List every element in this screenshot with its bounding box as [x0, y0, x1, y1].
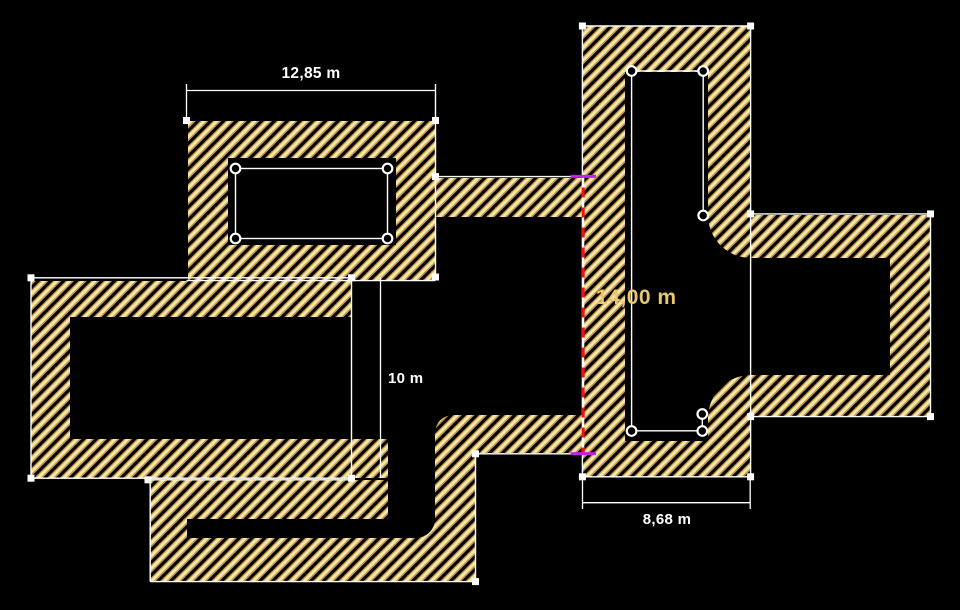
handle[interactable] — [747, 210, 754, 217]
dim-bottom-line — [583, 477, 751, 509]
vertex[interactable] — [698, 409, 708, 419]
floorplan-canvas: 12,85 m 10 m 8,68 m 14,00 m — [0, 0, 960, 610]
handle[interactable] — [28, 475, 35, 482]
vertex[interactable] — [627, 426, 637, 436]
void-middle — [383, 280, 582, 415]
vertex[interactable] — [698, 426, 708, 436]
handle[interactable] — [747, 23, 754, 30]
vertex[interactable] — [383, 234, 393, 244]
handle[interactable] — [145, 476, 152, 483]
handle[interactable] — [927, 413, 934, 420]
structure-left-bottom-band[interactable] — [31, 439, 388, 478]
handle[interactable] — [579, 473, 586, 480]
plan-drawing — [0, 0, 960, 610]
handle[interactable] — [747, 473, 754, 480]
handle[interactable] — [472, 450, 479, 457]
void-upper — [436, 217, 582, 280]
vertex[interactable] — [698, 66, 708, 76]
vertex[interactable] — [231, 164, 241, 174]
vertex[interactable] — [698, 211, 708, 221]
vertex[interactable] — [383, 164, 393, 174]
handle[interactable] — [579, 23, 586, 30]
handle[interactable] — [28, 274, 35, 281]
handle[interactable] — [747, 413, 754, 420]
vertex[interactable] — [627, 66, 637, 76]
interior-bottom-channel — [187, 519, 435, 538]
handle[interactable] — [927, 210, 934, 217]
handle[interactable] — [432, 173, 439, 180]
corridor-top[interactable] — [436, 178, 584, 217]
handle[interactable] — [348, 475, 355, 482]
structure-left-top-band[interactable] — [31, 281, 352, 317]
handle[interactable] — [183, 117, 190, 124]
handle[interactable] — [432, 117, 439, 124]
handle[interactable] — [432, 274, 439, 281]
interior-top-left-room — [228, 158, 396, 245]
handle[interactable] — [472, 578, 479, 585]
vertex[interactable] — [231, 234, 241, 244]
handle[interactable] — [348, 274, 355, 281]
